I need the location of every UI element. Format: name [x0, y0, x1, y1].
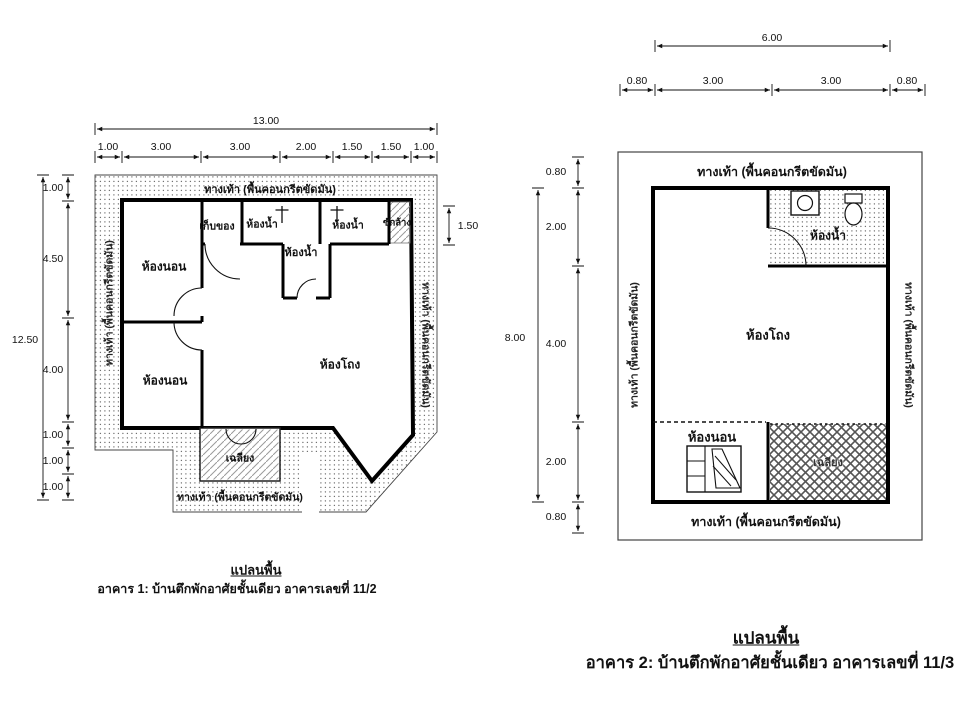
plan2-dim-left-5: 0.80	[546, 511, 566, 523]
plan1-dim-left-3: 4.00	[43, 364, 63, 376]
plan1-room-label-laundry: ซักล้าง	[383, 216, 411, 231]
plan1-dim-left-5: 1.00	[43, 455, 63, 467]
plan1-room-label-bedroom-1: ห้องนอน	[142, 258, 187, 277]
plan2-dim-top-2: 3.00	[703, 75, 723, 87]
plan1-room-label-bath1: ห้องน้ำ	[246, 216, 277, 233]
plan2-dim-left-4: 2.00	[546, 456, 566, 468]
plan2-dim-left-2: 2.00	[546, 221, 566, 233]
plan2-dim-left-1: 0.80	[546, 166, 566, 178]
plan1-dim-top-6: 1.50	[381, 141, 401, 153]
plan1-walkway-label-bottom: ทางเท้า (พื้นคอนกรีตขัดมัน)	[177, 489, 303, 506]
plan2-room-label-bedroom: ห้องนอน	[688, 427, 736, 448]
plan1-dim-left-6: 1.00	[43, 481, 63, 493]
plan2-room-label-bath: ห้องน้ำ	[810, 227, 846, 246]
plan2-dim-total-height: 8.00	[505, 332, 525, 344]
plan1-dim-left-2: 4.50	[43, 253, 63, 265]
plan1-dim-right: 1.50	[458, 220, 478, 232]
plan2-room-label-porch: เฉลียง	[813, 453, 843, 471]
plan2-dim-left-3: 4.00	[546, 338, 566, 350]
plan1-dim-left-4: 1.00	[43, 429, 63, 441]
plan1-dim-top-1: 1.00	[98, 141, 118, 153]
plan1-caption-subtitle: อาคาร 1: บ้านตึกพักอาศัยชั้นเดียว อาคารเ…	[97, 579, 376, 599]
plan1-room-label-bedroom-2: ห้องนอน	[143, 372, 188, 391]
plan1-dim-top-7: 1.00	[414, 141, 434, 153]
plan2-dim-total-width: 6.00	[762, 32, 782, 44]
plan2-walkway-label-bottom: ทางเท้า (พื้นคอนกรีตขัดมัน)	[691, 512, 841, 532]
plan1-dim-top-3: 3.00	[230, 141, 250, 153]
plan1-walkway-label-left: ทางเท้า (พื้นคอนกรีตขัดมัน)	[101, 240, 118, 366]
plan1-room-label-bath3: ห้องน้ำ	[285, 243, 318, 261]
plan2-caption-title: แปลนพื้น	[733, 625, 800, 652]
plan1-walkway-label-top: ทางเท้า (พื้นคอนกรีตขัดมัน)	[204, 180, 336, 198]
plan2-dim-top-4: 0.80	[897, 75, 917, 87]
plan1-dim-total-width: 13.00	[253, 115, 279, 127]
plan2-walkway-label-top: ทางเท้า (พื้นคอนกรีตขัดมัน)	[697, 162, 847, 182]
plan2-walkway-label-left: ทางเท้า (พื้นคอนกรีตขัดมัน)	[626, 282, 643, 408]
plan1-dim-top-4: 2.00	[296, 141, 316, 153]
plan1-room-label-hall: ห้องโถง	[320, 356, 361, 375]
plan2-caption-subtitle: อาคาร 2: บ้านตึกพักอาศัยชั้นเดียว อาคารเ…	[586, 650, 954, 676]
plan2-room-label-hall: ห้องโถง	[746, 325, 790, 346]
plan1-dim-top-5: 1.50	[342, 141, 362, 153]
plan2-dim-top-1: 0.80	[627, 75, 647, 87]
plan1-room-label-bath2: ห้องน้ำ	[332, 217, 363, 234]
plan1-room-label-porch: เฉลียง	[226, 450, 254, 467]
plan1-walkway-label-right: ทางเท้า (พื้นคอนกรีตขัดมัน)	[418, 282, 435, 408]
plan2-dim-top-3: 3.00	[821, 75, 841, 87]
plan2-walkway-label-right: ทางเท้า (พื้นคอนกรีตขัดมัน)	[901, 282, 918, 408]
plan1-dim-top-2: 3.00	[151, 141, 171, 153]
plan1-dim-total-height: 12.50	[12, 334, 38, 346]
plan1-caption-title: แปลนพื้น	[231, 560, 282, 581]
floorplan-sheet: 13.00 1.00 3.00 3.00 2.00 1.50 1.50 1.00…	[0, 0, 960, 720]
plan1-room-label-storage: เก็บของ	[199, 218, 234, 235]
plan1-dim-left-1: 1.00	[43, 182, 63, 194]
floorplan-linework	[0, 0, 960, 720]
